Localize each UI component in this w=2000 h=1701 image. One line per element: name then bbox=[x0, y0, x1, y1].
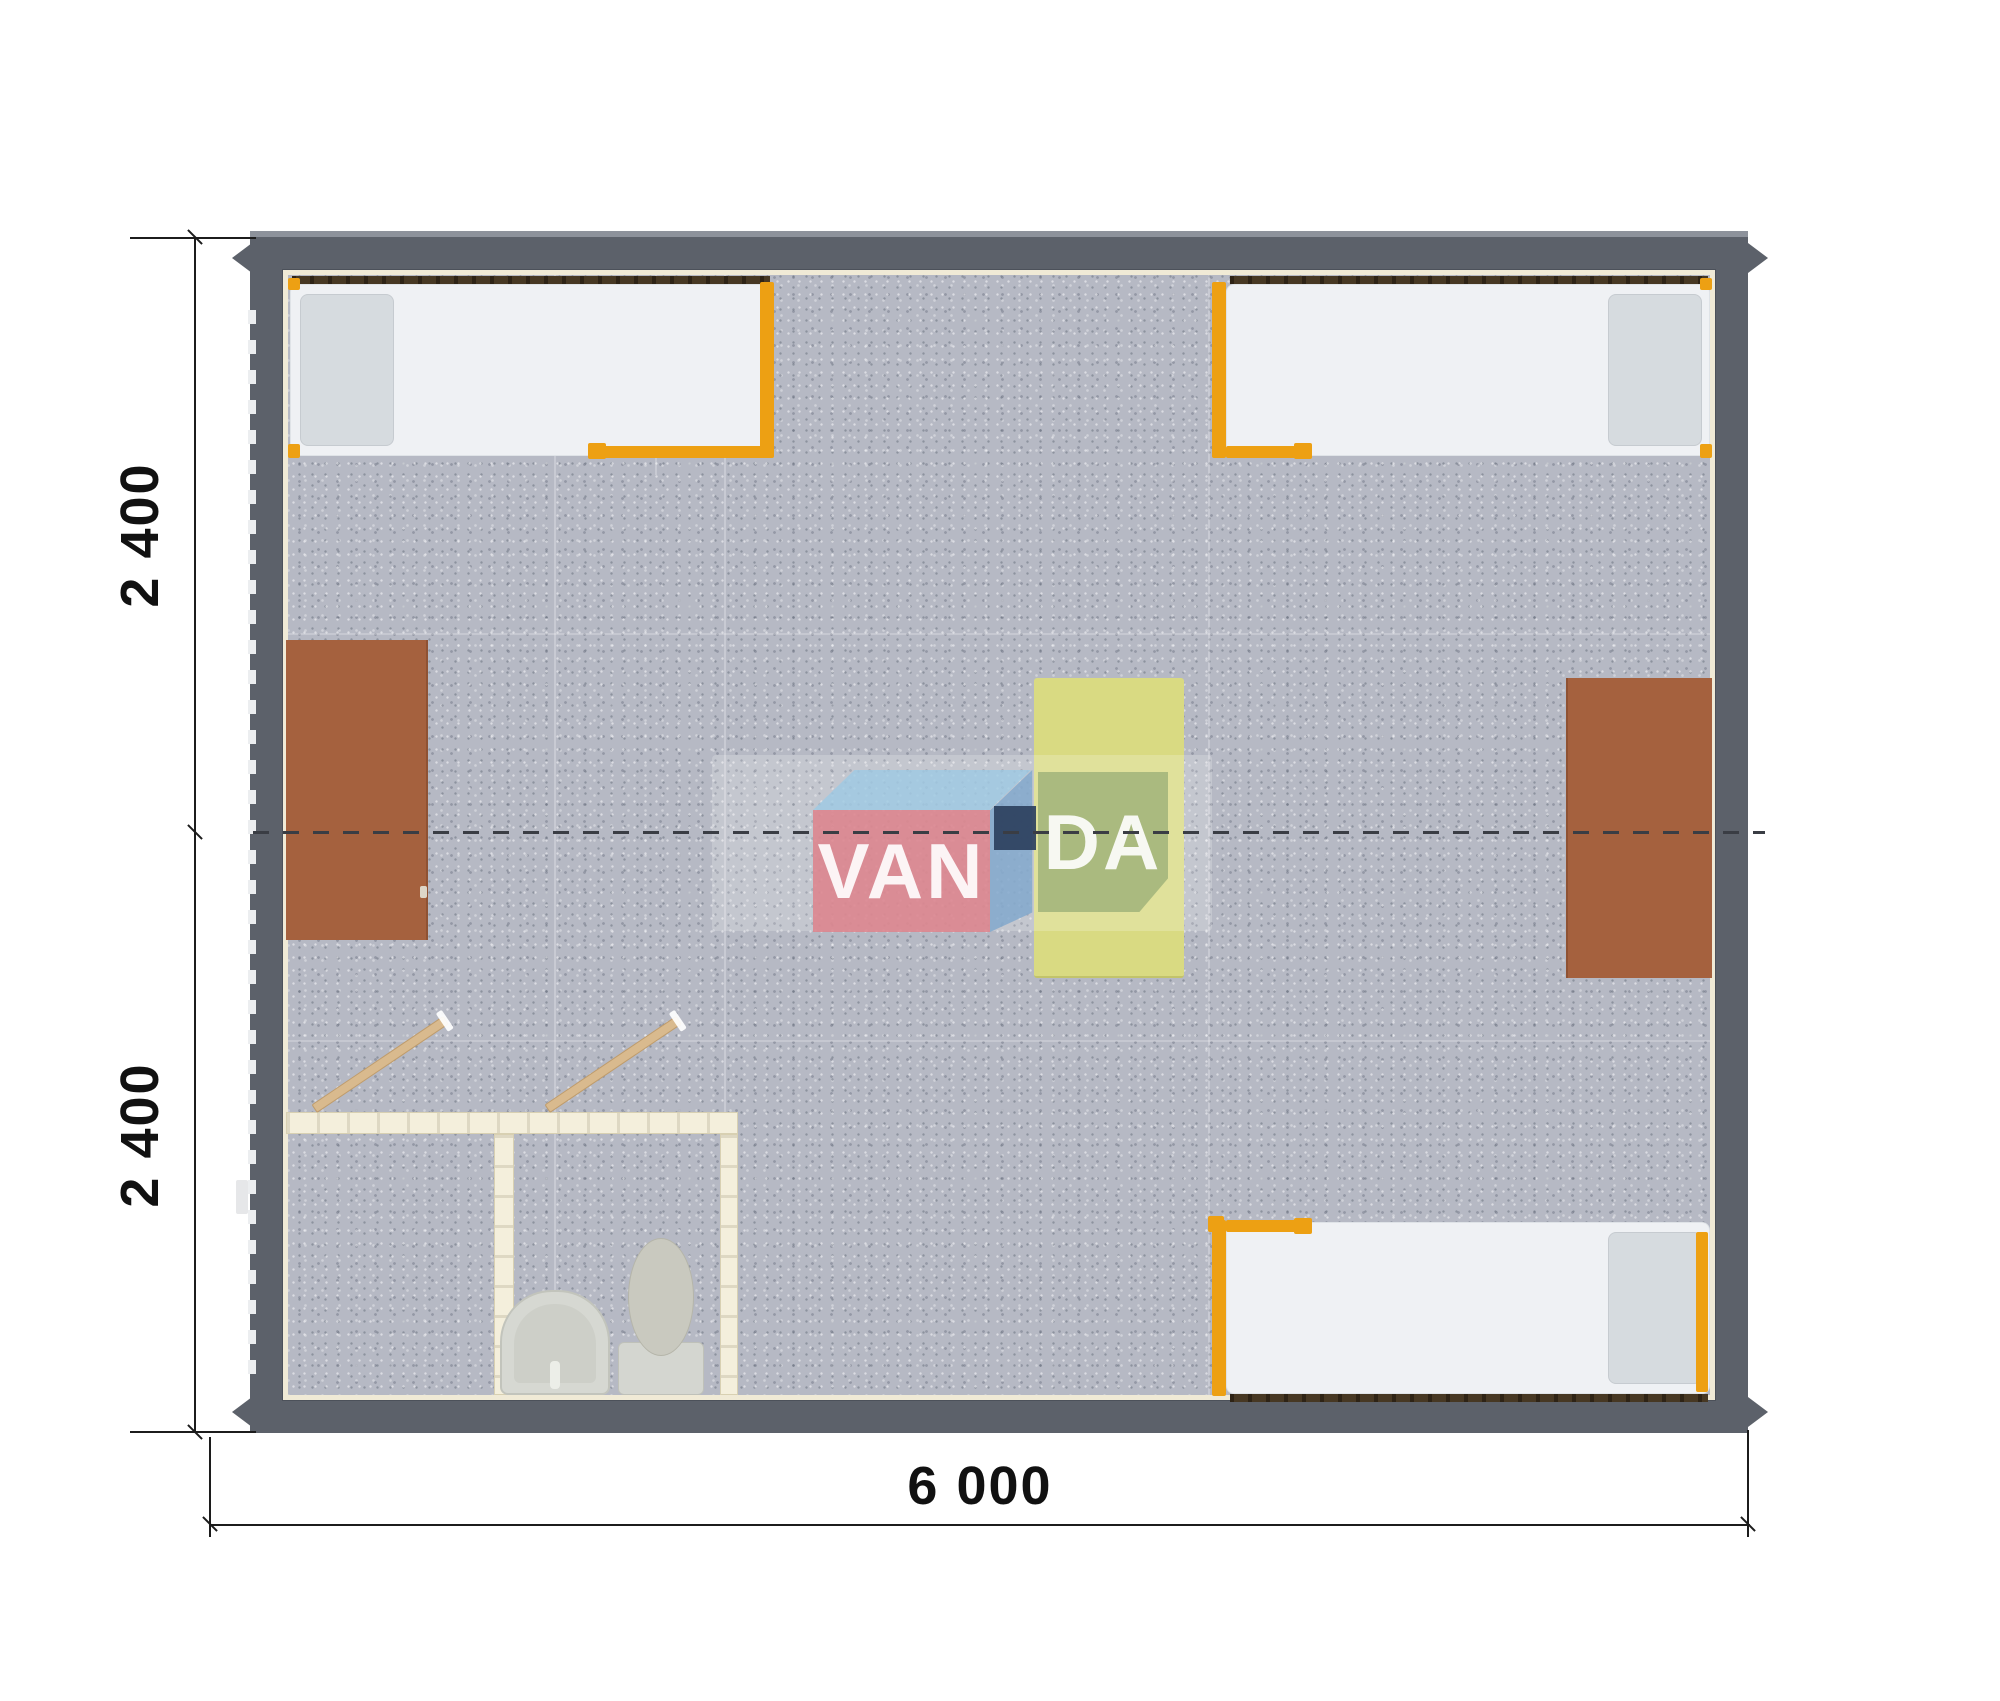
corner-casting-bottom-right bbox=[1748, 1397, 1768, 1427]
left-wall-siding-seams bbox=[248, 310, 256, 1390]
bed-top-left-pillow bbox=[300, 294, 394, 446]
dimension-label-height-bottom: 2 400 bbox=[109, 1035, 171, 1235]
bed-bottom-right-frame-head-bar bbox=[1696, 1232, 1708, 1392]
bed-top-right-frame-foot-bar bbox=[1212, 282, 1226, 458]
bed-top-right-headrail bbox=[1230, 276, 1708, 284]
bed-bottom-right-frame-cap bbox=[1208, 1216, 1224, 1232]
bed-bottom-right-headrail bbox=[1230, 1394, 1708, 1402]
dimension-line-bottom bbox=[210, 1524, 1750, 1526]
bathroom-wall-horizontal bbox=[286, 1112, 738, 1134]
bed-top-right-frame-cap bbox=[1700, 444, 1712, 458]
wardrobe-right bbox=[1566, 678, 1712, 978]
exterior-door-handle bbox=[236, 1180, 248, 1214]
bed-top-right-frame-cap bbox=[1700, 278, 1712, 290]
bed-bottom-right-pillow bbox=[1608, 1232, 1702, 1384]
bed-top-left-frame-cap bbox=[288, 278, 300, 290]
bathroom-wall-right bbox=[720, 1134, 738, 1395]
bed-bottom-right-frame-cap bbox=[1294, 1218, 1312, 1234]
bed-top-right-frame-cap bbox=[1294, 443, 1312, 459]
sink bbox=[500, 1290, 610, 1395]
floor-seam bbox=[288, 633, 1710, 635]
bed-top-left-headrail bbox=[292, 276, 770, 284]
logo-navy-square bbox=[994, 806, 1036, 850]
floor-seam bbox=[288, 1040, 1710, 1042]
logo-text-da: DA bbox=[1044, 803, 1163, 881]
sink-faucet bbox=[550, 1361, 560, 1389]
logo-green-face: DA bbox=[1038, 772, 1168, 912]
bed-top-left-frame-cap bbox=[588, 443, 606, 459]
logo-text-van: VAN bbox=[818, 832, 986, 910]
wardrobe-left bbox=[286, 640, 428, 940]
corner-casting-top-left bbox=[232, 243, 252, 273]
corner-casting-top-right bbox=[1748, 243, 1768, 273]
floor-plan-page: VAN DA 2 400 2 400 6 000 bbox=[0, 0, 2000, 1701]
dimension-label-height-top: 2 400 bbox=[109, 435, 171, 635]
bed-top-right-pillow bbox=[1608, 294, 1702, 446]
corner-casting-bottom-left bbox=[232, 1397, 252, 1427]
bed-bottom-right-frame-foot-bar bbox=[1212, 1220, 1226, 1396]
logo-box-front-face: VAN bbox=[813, 810, 990, 932]
bed-bottom-right-frame-side-bar bbox=[1226, 1220, 1302, 1232]
wardrobe-left-handle bbox=[420, 886, 427, 898]
bed-top-left-frame-foot-bar bbox=[760, 282, 774, 458]
bed-top-right-frame-side-bar bbox=[1226, 446, 1302, 458]
bed-top-left-frame-cap bbox=[288, 444, 300, 458]
bed-top-left-frame-side-bar bbox=[592, 446, 764, 458]
dimension-label-width: 6 000 bbox=[210, 1455, 1750, 1517]
center-axis-dashed-line bbox=[253, 831, 1765, 834]
toilet-lid bbox=[628, 1238, 694, 1356]
